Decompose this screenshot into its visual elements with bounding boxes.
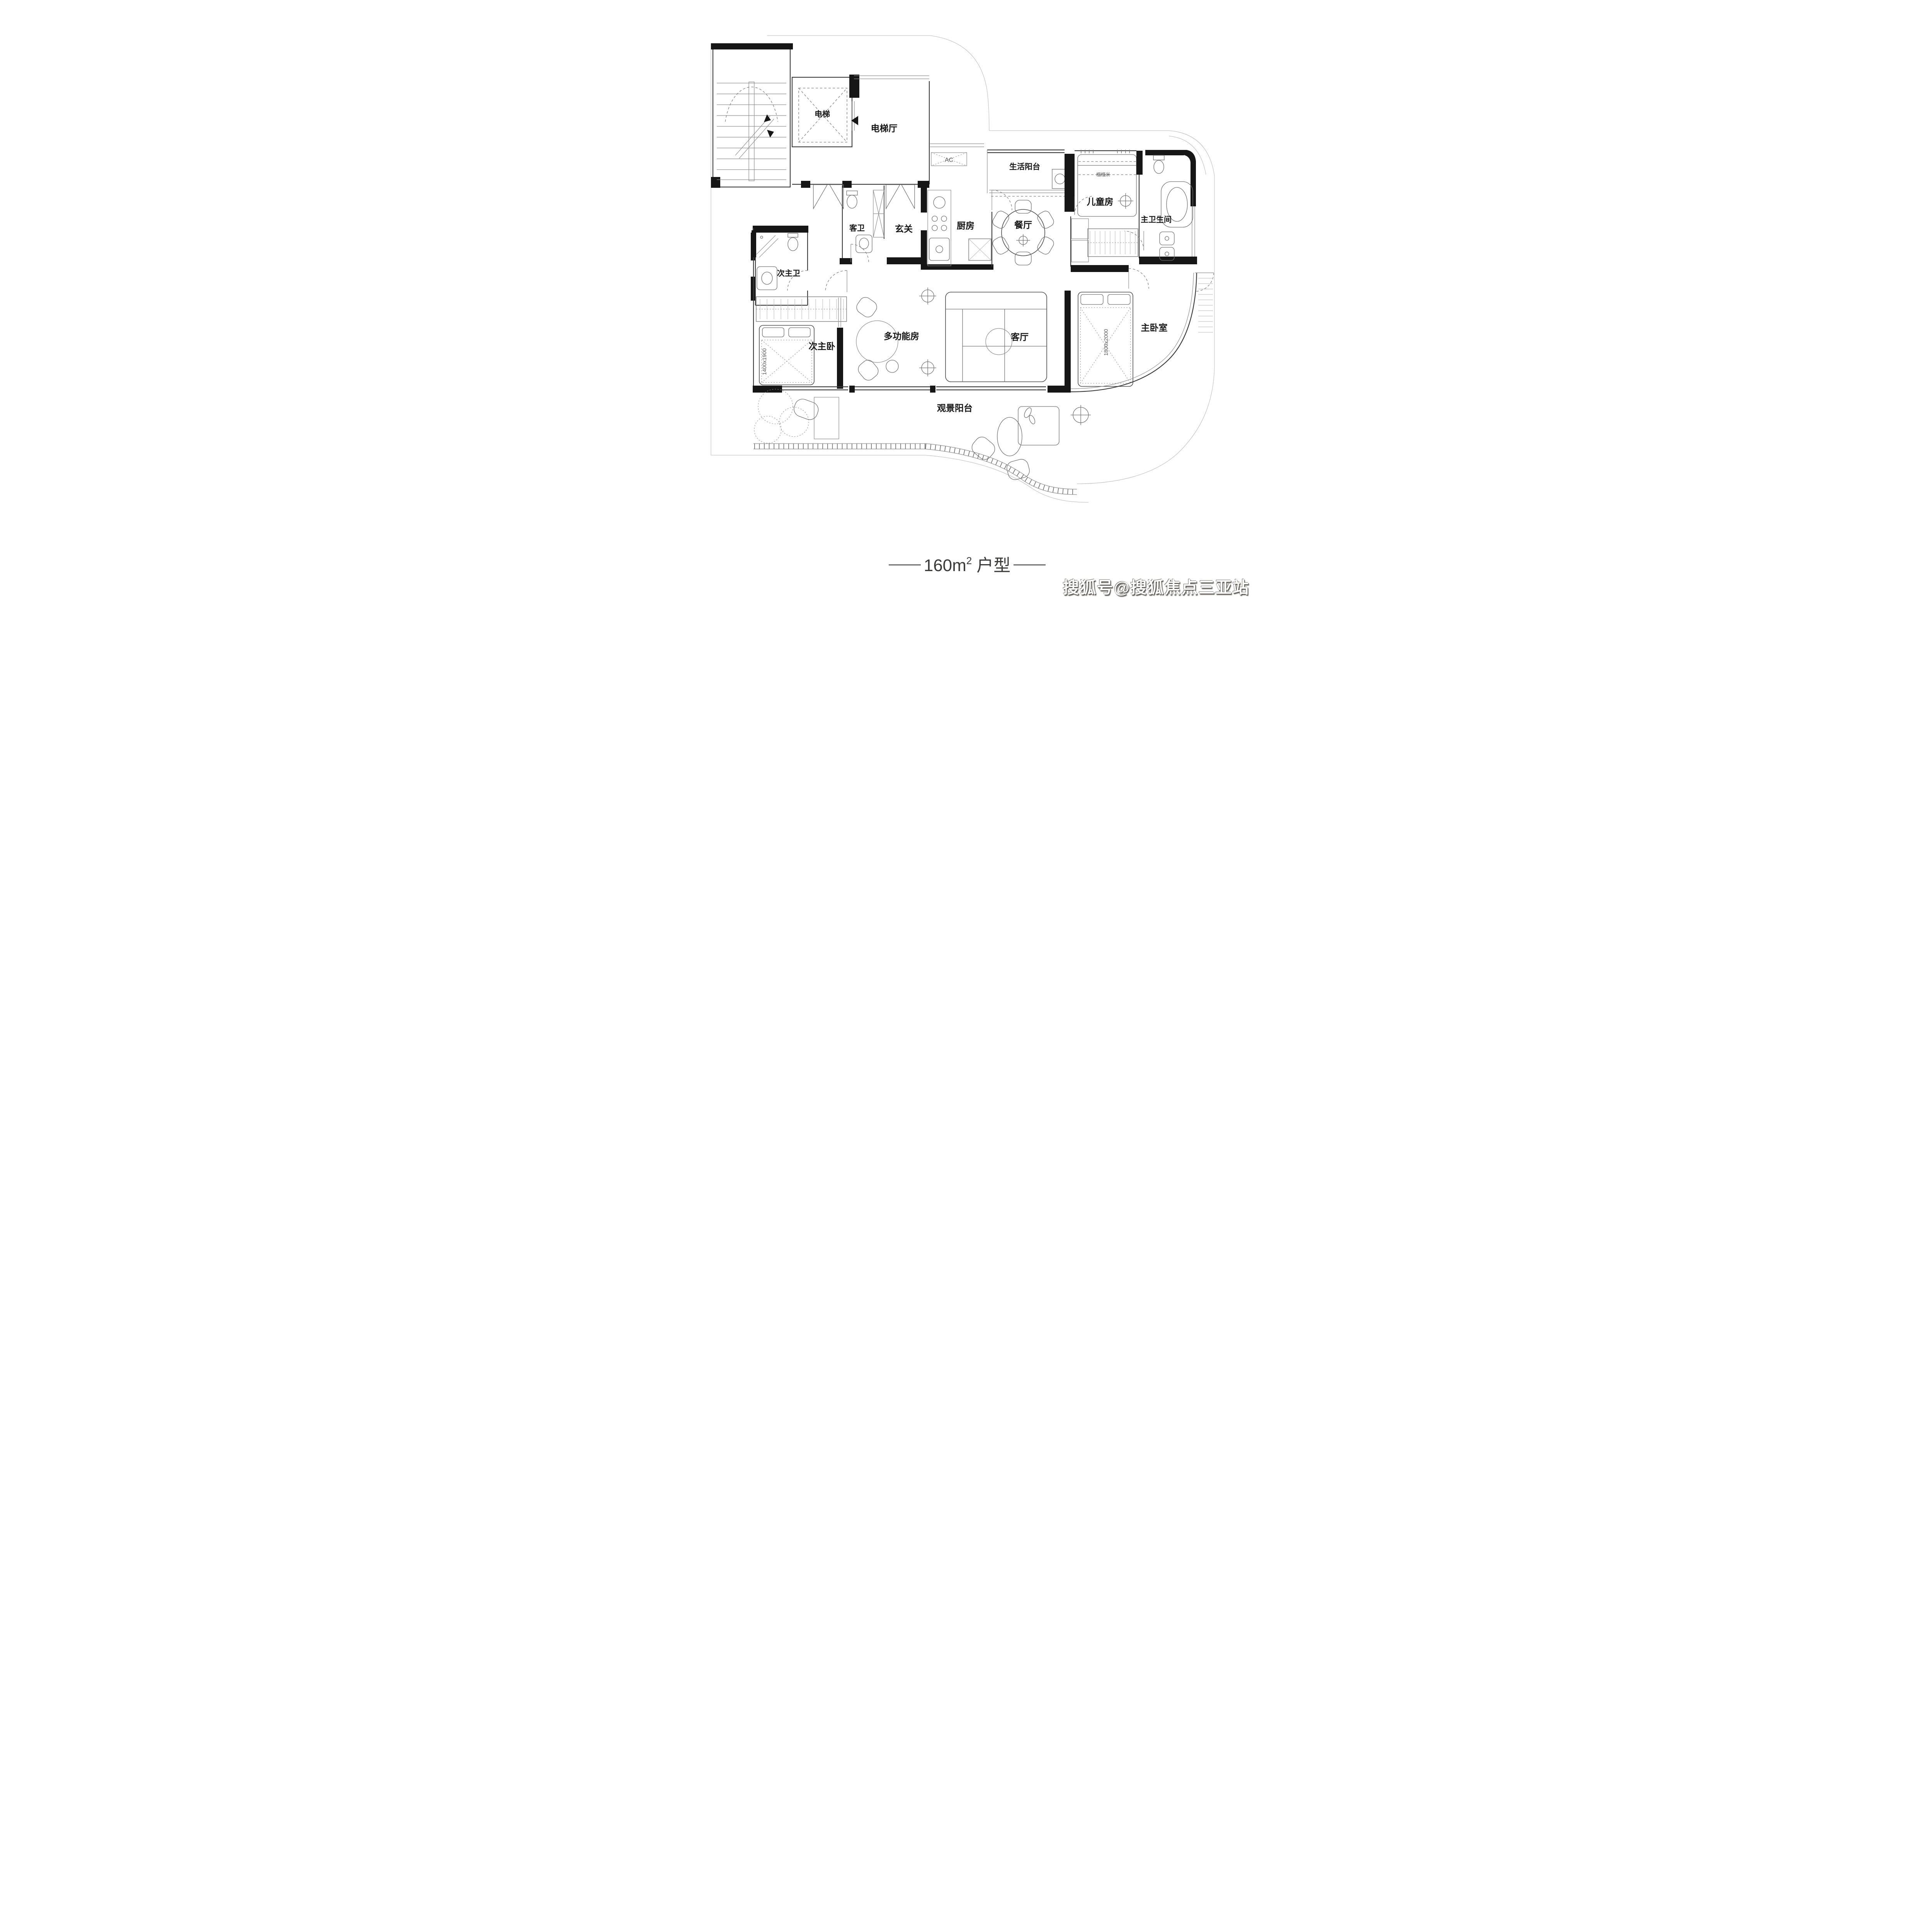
multifunction-room: 多功能房 bbox=[849, 295, 935, 393]
ac-closet: AC bbox=[930, 144, 984, 166]
kitchen: 厨房 bbox=[921, 185, 1012, 270]
side-table bbox=[886, 360, 898, 372]
entryway: 玄关 bbox=[825, 224, 924, 292]
secondary-master-bathroom: 次主卫 bbox=[751, 226, 808, 305]
dining-table bbox=[1002, 209, 1045, 256]
room-label-entryway: 玄关 bbox=[895, 224, 913, 234]
tatami-bed bbox=[1078, 155, 1136, 216]
room-label-elevator: 电梯 bbox=[815, 109, 830, 119]
room-label-secondary-master-bathroom: 次主卫 bbox=[777, 269, 800, 278]
room-label-master-bathroom: 主卫生间 bbox=[1141, 215, 1172, 224]
room-label-master-bedroom: 主卧室 bbox=[1141, 323, 1167, 333]
watermark: 搜狐号@搜狐焦点三亚站 bbox=[1063, 575, 1250, 598]
lounge-chair bbox=[792, 397, 820, 422]
oven bbox=[929, 238, 949, 260]
bed-dimension: 1800x2000 bbox=[1103, 329, 1109, 356]
kitchen-sink bbox=[934, 197, 945, 208]
kitchen-counter bbox=[928, 190, 951, 266]
armchair bbox=[854, 295, 879, 320]
elevator: 电梯 bbox=[792, 75, 859, 147]
bed bbox=[759, 325, 814, 385]
room-label-children-room: 儿童房 bbox=[1087, 197, 1113, 207]
secondary-master-bedroom: 1400x1900 次主卧 bbox=[752, 228, 848, 393]
guest-bathroom: 客卫 bbox=[840, 185, 884, 264]
sofa bbox=[946, 292, 1047, 382]
room-label-guest-bathroom: 客卫 bbox=[849, 223, 865, 233]
outdoor-chair bbox=[969, 434, 998, 463]
stairwell bbox=[711, 43, 793, 188]
outdoor-sofa bbox=[1018, 406, 1059, 445]
room-label-living-room: 客厅 bbox=[1011, 332, 1029, 342]
tatami-note: 榻榻米 bbox=[1096, 172, 1110, 177]
room-label-dining-room: 餐厅 bbox=[1014, 220, 1032, 230]
sink bbox=[757, 267, 777, 290]
title-text: 160m2户型 bbox=[923, 555, 1010, 575]
elevator-hall: 电梯厅 bbox=[792, 76, 929, 188]
plant bbox=[754, 389, 839, 443]
toilet bbox=[1153, 155, 1164, 160]
room-label-viewing-balcony: 观景阳台 bbox=[937, 403, 973, 413]
children-room: 榻榻米 儿童房 bbox=[1065, 151, 1138, 257]
room-label-secondary-master-bedroom: 次主卧 bbox=[808, 341, 835, 351]
toilet bbox=[847, 191, 857, 195]
living-room: 客厅 bbox=[919, 287, 1071, 393]
bed-dimension: 1400x1900 bbox=[761, 348, 767, 375]
rug bbox=[856, 321, 898, 362]
tall-cabinet bbox=[1071, 219, 1088, 239]
floor-plan-canvas: 电梯 电梯厅 AC 生活阳台 榻榻米 bbox=[678, 0, 1254, 604]
room-label-kitchen: 厨房 bbox=[957, 221, 975, 231]
life-balcony: 生活阳台 bbox=[987, 150, 1068, 196]
viewing-balcony: 观景阳台 bbox=[753, 389, 1077, 495]
room-label-elevator-hall: 电梯厅 bbox=[871, 123, 897, 133]
floor-plan-page: 电梯 电梯厅 AC 生活阳台 榻榻米 bbox=[678, 0, 1254, 604]
sink bbox=[1160, 232, 1174, 245]
master-bedroom: 1800x2000 主卧室 bbox=[1071, 265, 1214, 425]
tall-cabinet bbox=[1071, 240, 1088, 262]
room-label-life-balcony: 生活阳台 bbox=[1009, 162, 1040, 171]
room-label-multifunction-room: 多功能房 bbox=[884, 331, 919, 341]
ac-label: AC bbox=[944, 157, 953, 163]
entry-doors bbox=[813, 185, 915, 209]
plan-title: 160m2户型 bbox=[889, 555, 1046, 575]
toilet bbox=[788, 233, 798, 237]
railing-curve bbox=[925, 446, 1077, 492]
armchair bbox=[855, 357, 881, 383]
